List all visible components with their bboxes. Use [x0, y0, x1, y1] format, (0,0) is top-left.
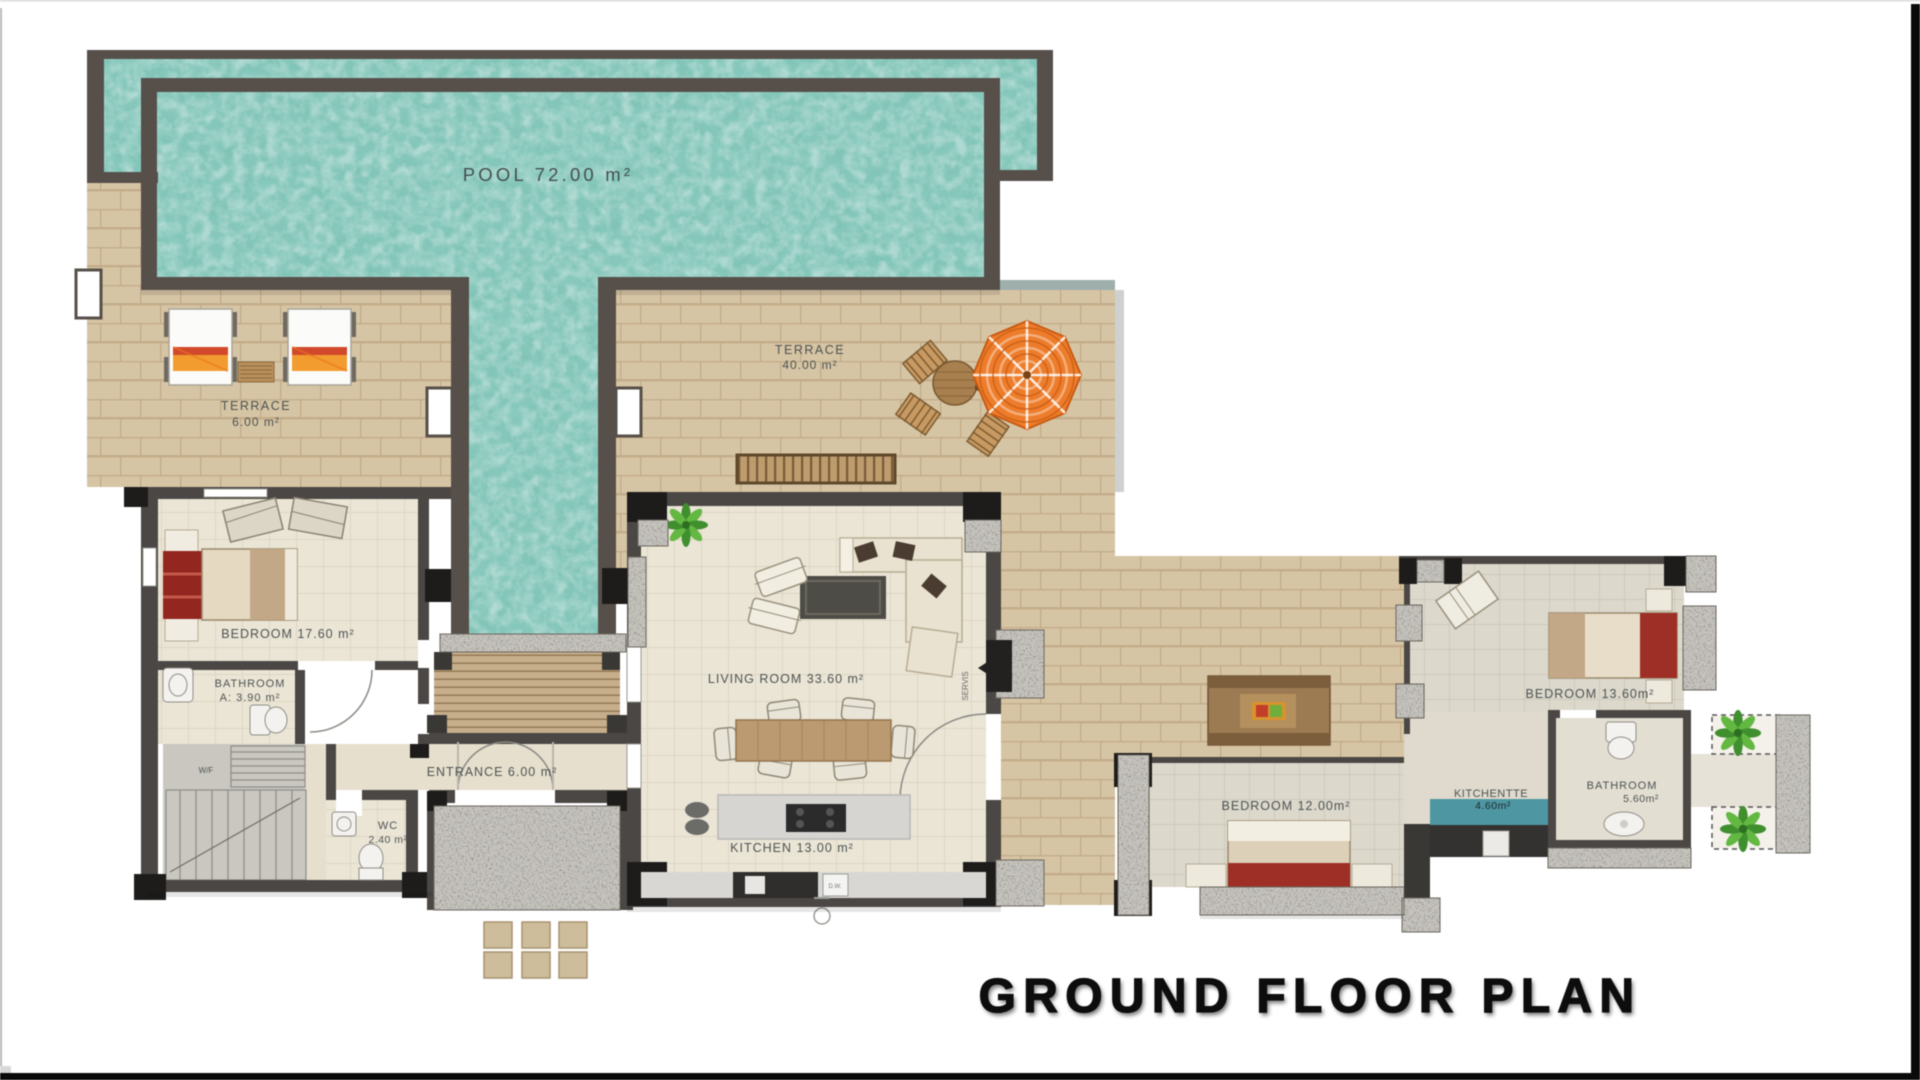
svg-text:BEDROOM 17.60 m²: BEDROOM 17.60 m² — [221, 627, 354, 641]
svg-text:BATHROOM: BATHROOM — [215, 678, 286, 690]
svg-text:6.00 m²: 6.00 m² — [232, 415, 280, 429]
svg-text:BEDROOM 12.00m²: BEDROOM 12.00m² — [1222, 799, 1351, 813]
svg-text:GROUND FLOOR PLAN: GROUND FLOOR PLAN — [979, 970, 1642, 1023]
svg-text:BEDROOM 13.60m²: BEDROOM 13.60m² — [1526, 687, 1655, 701]
svg-text:4.60m²: 4.60m² — [1475, 800, 1511, 812]
svg-text:D.W.: D.W. — [829, 884, 842, 890]
svg-text:40.00 m²: 40.00 m² — [782, 358, 837, 372]
svg-text:TERRACE: TERRACE — [221, 399, 291, 413]
svg-text:WC: WC — [378, 820, 398, 832]
svg-text:SERVIS: SERVIS — [961, 671, 970, 700]
svg-text:5.60m²: 5.60m² — [1623, 793, 1659, 805]
svg-text:2.40 m²: 2.40 m² — [368, 834, 407, 846]
svg-text:TERRACE: TERRACE — [775, 343, 845, 357]
svg-text:A: 3.90 m²: A: 3.90 m² — [220, 692, 281, 704]
svg-text:BATHROOM: BATHROOM — [1587, 780, 1658, 792]
svg-text:KITCHEN 13.00 m²: KITCHEN 13.00 m² — [730, 841, 854, 855]
svg-text:ENTRANCE 6.00 m²: ENTRANCE 6.00 m² — [427, 765, 558, 779]
svg-text:LIVING ROOM 33.60 m²: LIVING ROOM 33.60 m² — [708, 672, 864, 686]
svg-text:POOL 72.00 m²: POOL 72.00 m² — [463, 164, 633, 185]
svg-text:KITCHENTTE: KITCHENTTE — [1454, 788, 1528, 800]
svg-text:W/F: W/F — [199, 766, 214, 775]
